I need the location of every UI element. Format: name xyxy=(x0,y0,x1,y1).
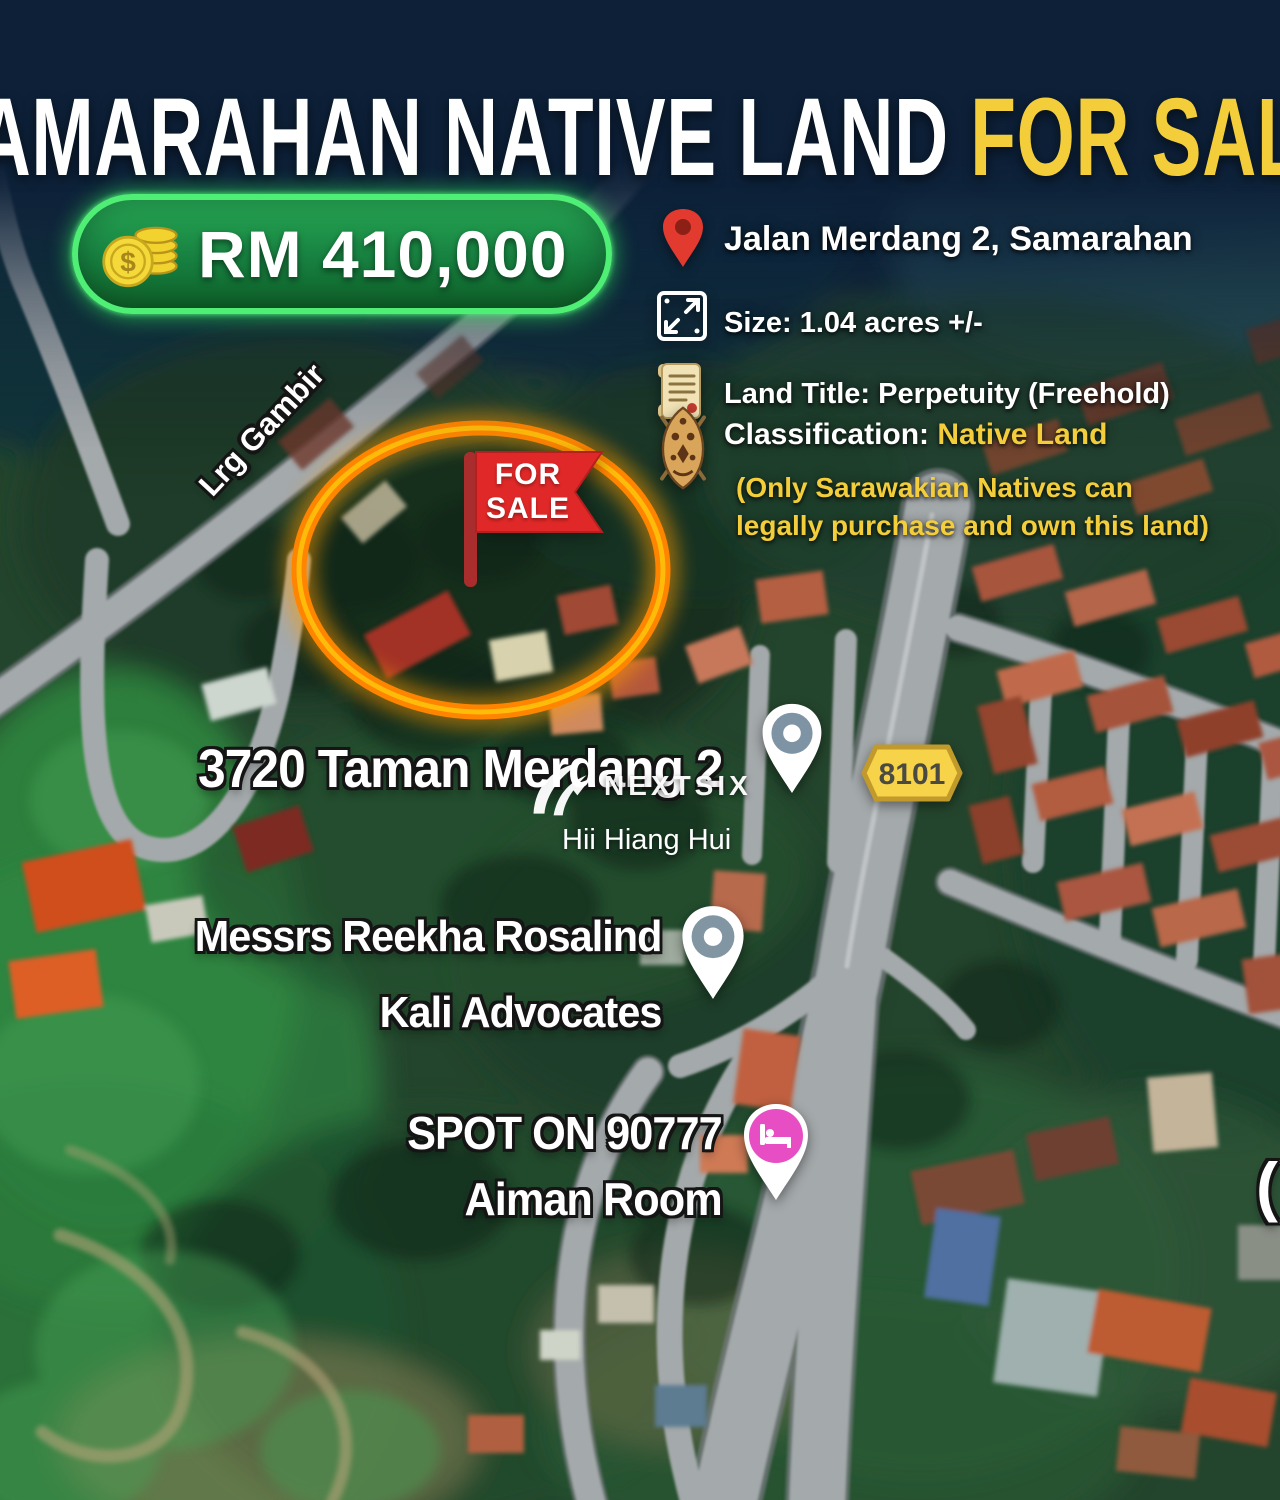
svg-text:$: $ xyxy=(120,247,136,278)
for-sale-flag-label: FOR SALE xyxy=(476,458,580,526)
classification-label: Classification: xyxy=(724,418,937,451)
expand-icon xyxy=(656,290,708,342)
title-main: SAMARAHAN NATIVE LAND xyxy=(0,76,970,199)
tribal-shield-icon xyxy=(654,404,712,492)
place-label-hotel: SPOT ON 90777 Aiman Room xyxy=(407,1106,722,1226)
flag-line1: FOR xyxy=(476,458,580,492)
map-pin-icon xyxy=(658,206,708,270)
nextsix-logo-icon xyxy=(528,758,592,818)
watermark-agent-name: Hii Hiang Hui xyxy=(562,824,731,857)
classification-note-line2: legally purchase and own this land) xyxy=(736,510,1209,542)
route-badge-text: 8101 xyxy=(879,758,946,791)
price-amount: RM 410,000 xyxy=(198,216,568,292)
flag-line2: SALE xyxy=(476,492,580,526)
advocates-line2: Kali Advocates xyxy=(194,988,661,1038)
advocates-line1: Messrs Reekha Rosalind xyxy=(194,912,661,962)
hotel-line1: SPOT ON 90777 xyxy=(407,1106,722,1160)
price-badge: $ RM 410,000 xyxy=(72,194,612,314)
poi-pin-taman-icon xyxy=(752,698,832,796)
page-title: SAMARAHAN NATIVE LAND FOR SALE xyxy=(0,74,1280,201)
cropped-label-fragment: ( xyxy=(1256,1148,1278,1224)
land-title-text: Land Title: Perpetuity (Freehold) xyxy=(724,378,1170,411)
classification-note-line1: (Only Sarawakian Natives can xyxy=(736,472,1133,504)
coins-icon: $ xyxy=(100,214,184,294)
place-label-advocates: Messrs Reekha Rosalind Kali Advocates xyxy=(194,912,661,1038)
classification-value: Native Land xyxy=(937,418,1107,451)
location-text: Jalan Merdang 2, Samarahan xyxy=(724,220,1193,259)
poi-pin-advocates-icon xyxy=(672,900,754,1002)
size-text: Size: 1.04 acres +/- xyxy=(724,307,983,340)
route-badge-8101: 8101 xyxy=(860,742,964,804)
hotel-line2: Aiman Room xyxy=(407,1172,722,1226)
watermark-brand: NEXTSIX xyxy=(604,770,752,802)
classification-line: Classification: Native Land xyxy=(724,418,1107,452)
hotel-pin-icon xyxy=(736,1098,816,1204)
flyer-canvas: FOR SALE SAMARAHAN NATIVE LAND FOR SALE … xyxy=(0,0,1280,1500)
title-highlight: FOR SALE xyxy=(970,76,1280,199)
